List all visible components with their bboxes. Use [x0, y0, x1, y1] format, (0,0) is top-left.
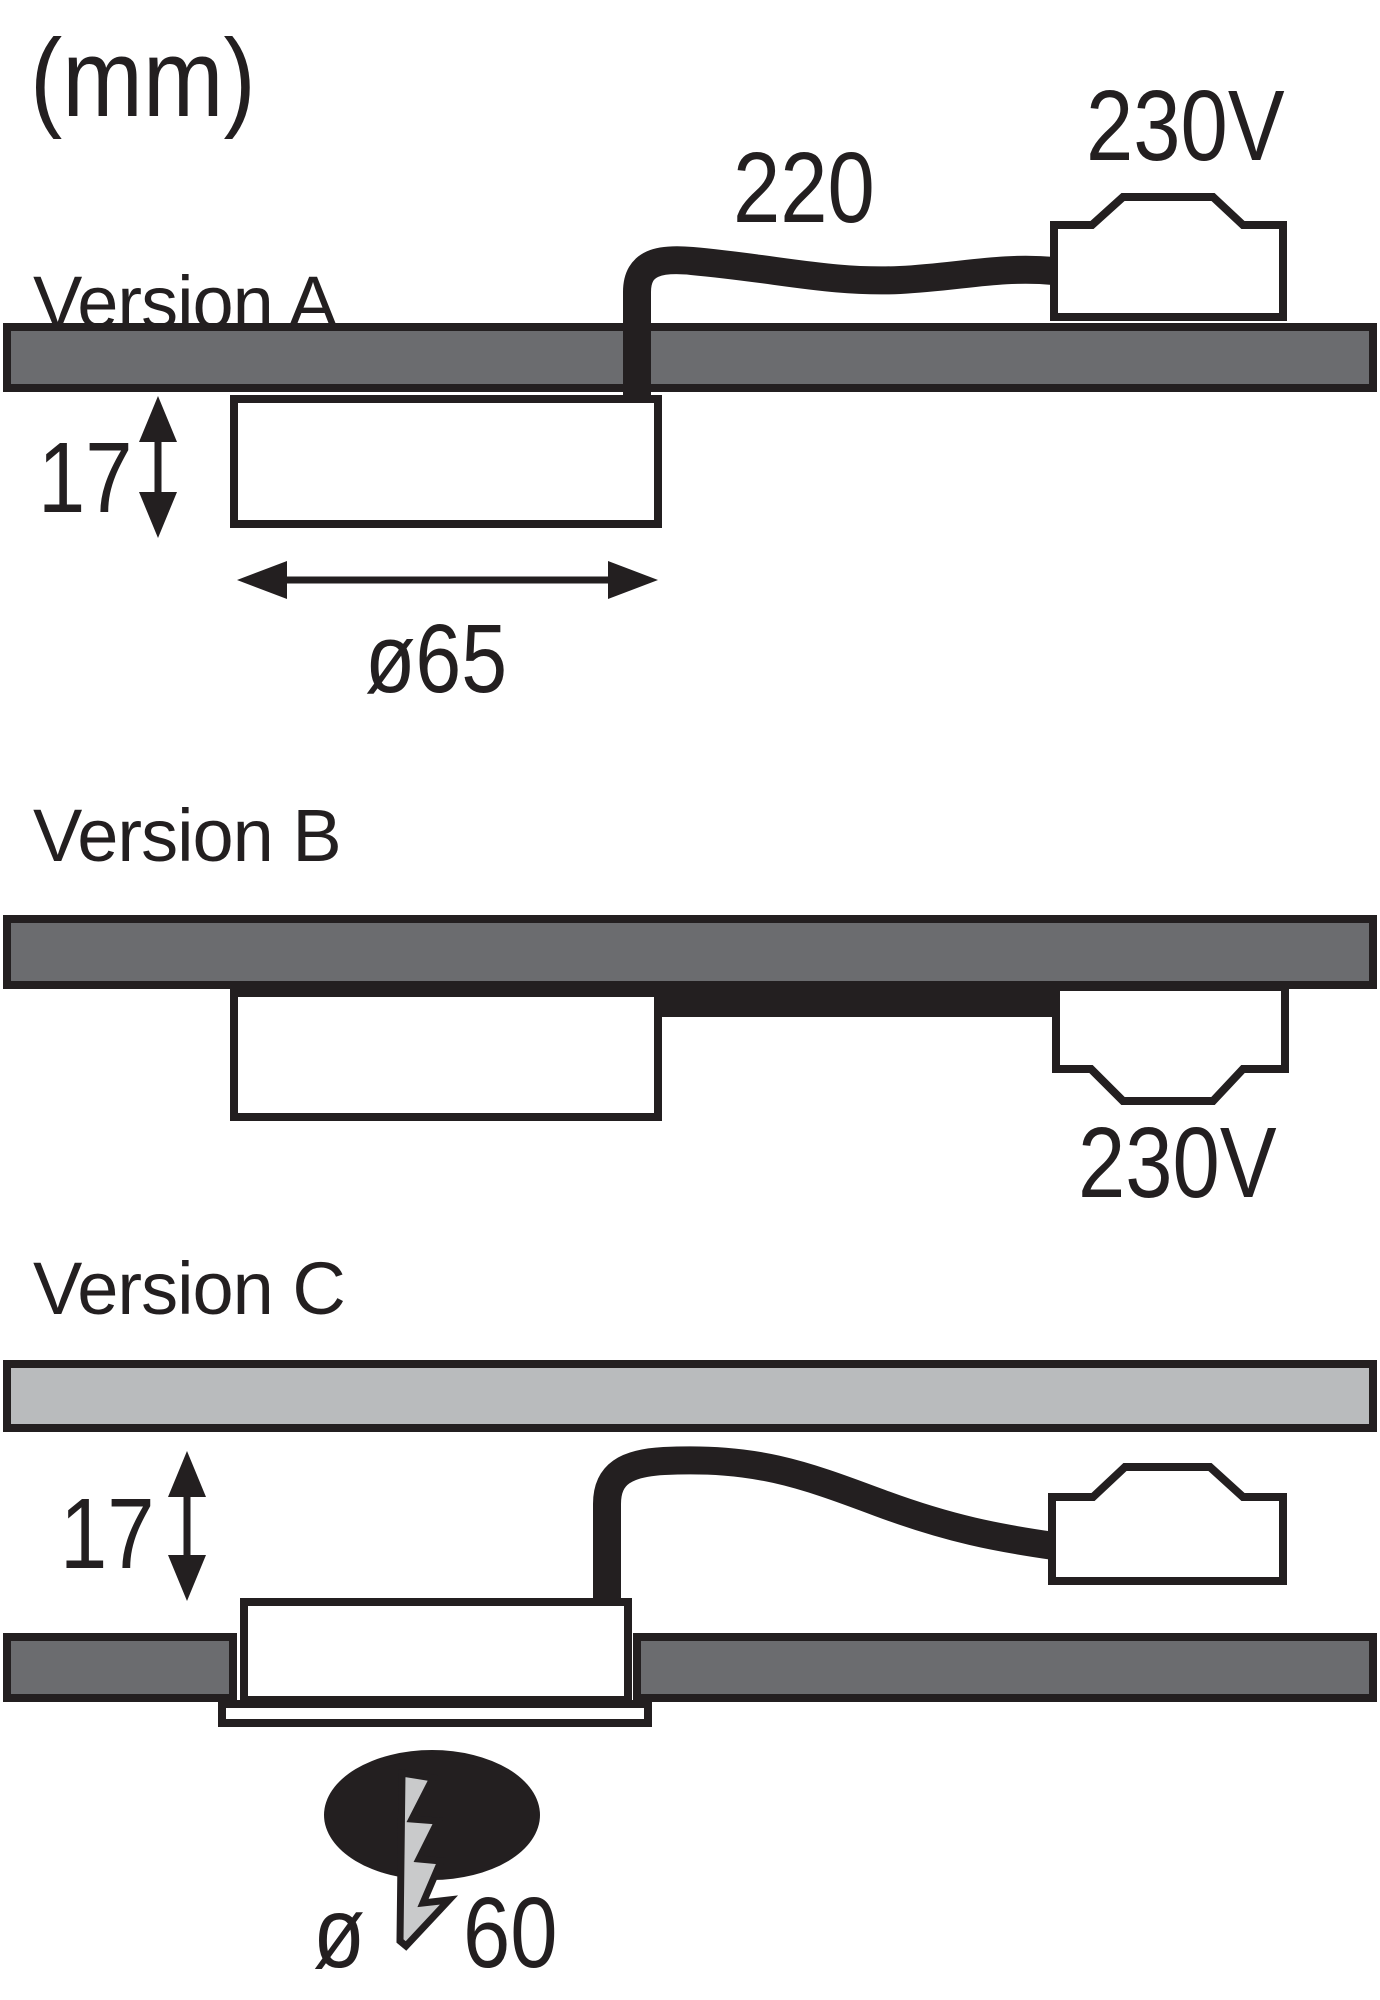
version-c-title: Version C — [33, 1252, 345, 1326]
version-a-depth-label: 17 — [38, 428, 133, 528]
arrow-up-head — [168, 1451, 206, 1497]
arrow-right-head — [608, 561, 658, 599]
dimension-diagram: (mm) Version A 220 230V 17 ø65 Version B… — [0, 0, 1380, 2000]
version-a-cable-length-label: 220 — [733, 138, 875, 238]
arrow-left-head — [237, 561, 287, 599]
version-a-title: Version A — [33, 266, 337, 340]
version-a-voltage-label: 230V — [1086, 76, 1285, 176]
version-b-mounting-panel — [7, 919, 1373, 985]
version-b-drawing — [7, 919, 1373, 1117]
version-c-drawing — [7, 1364, 1373, 1946]
version-a-luminaire-housing — [234, 399, 658, 524]
version-b-voltage-label: 230V — [1078, 1113, 1277, 1213]
version-b-luminaire-housing — [234, 993, 658, 1117]
version-c-depth-arrow — [168, 1451, 206, 1601]
version-c-diameter-value: 60 — [463, 1883, 558, 1983]
version-c-lower-panel-left — [7, 1637, 233, 1698]
version-a-diameter-label: ø65 — [365, 610, 507, 707]
version-a-depth-arrow — [139, 396, 177, 538]
version-c-lower-panel-right — [637, 1637, 1373, 1698]
version-c-depth-label: 17 — [60, 1484, 155, 1584]
version-c-upper-panel — [7, 1364, 1373, 1428]
version-c-luminaire-housing — [244, 1602, 628, 1700]
arrow-up-head — [139, 396, 177, 442]
arrow-down-head — [168, 1555, 206, 1601]
version-c-diameter-symbol: ø — [313, 1883, 365, 1983]
version-c-power-plug-icon — [1052, 1467, 1283, 1581]
version-b-power-plug-icon — [1056, 987, 1285, 1101]
version-b-flat-cable — [655, 989, 1056, 1017]
version-b-title: Version B — [33, 799, 341, 873]
version-c-cable — [607, 1460, 1054, 1600]
version-a-drawing — [7, 197, 1373, 599]
arrow-down-head — [139, 492, 177, 538]
unit-label: (mm) — [30, 24, 256, 134]
version-c-luminaire-trim-ring — [222, 1704, 648, 1723]
version-a-diameter-arrow — [237, 561, 658, 599]
version-a-power-plug-icon — [1054, 197, 1283, 317]
